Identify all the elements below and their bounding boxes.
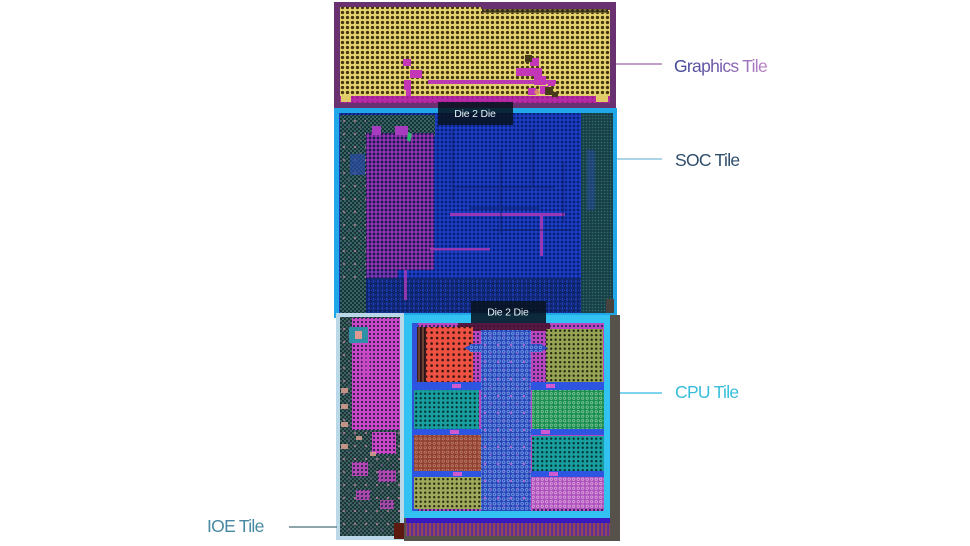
svg-text:IOE Tile: IOE Tile: [207, 516, 264, 536]
svg-text:SOC Tile: SOC Tile: [675, 150, 739, 170]
svg-text:Die 2 Die: Die 2 Die: [454, 108, 496, 120]
svg-text:Die 2 Die: Die 2 Die: [487, 307, 529, 319]
svg-text:Graphics Tile: Graphics Tile: [674, 56, 767, 76]
svg-text:CPU Tile: CPU Tile: [675, 382, 738, 402]
